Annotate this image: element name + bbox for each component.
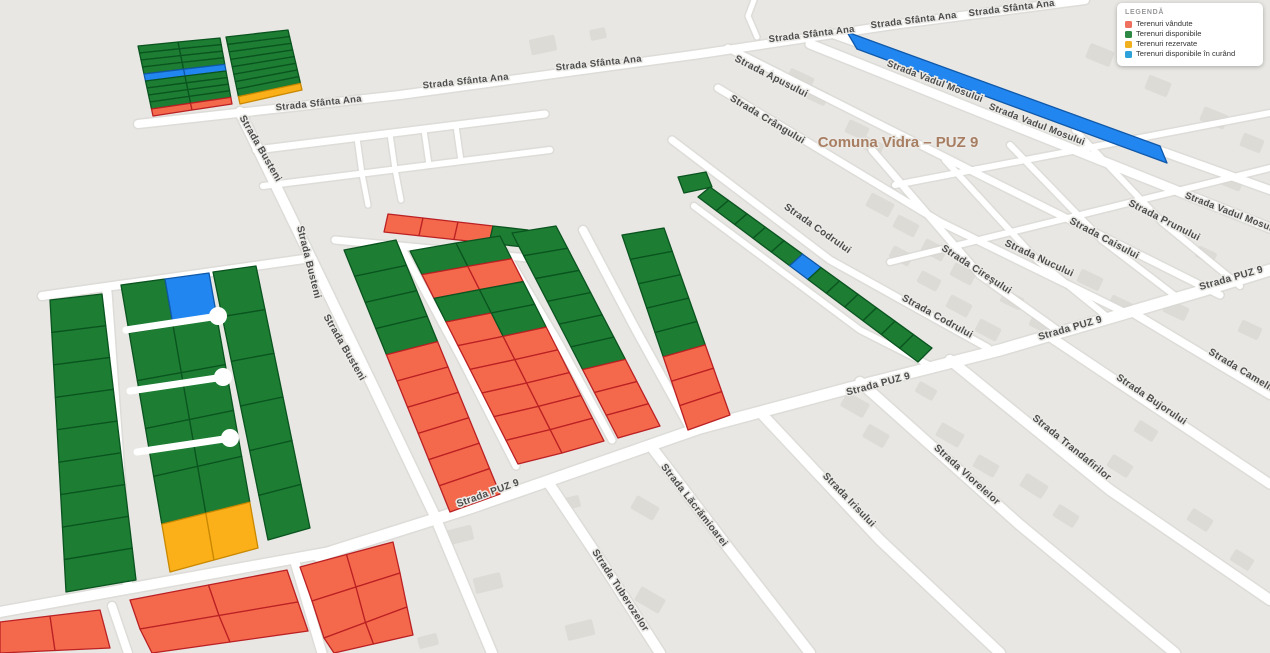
legend-swatch-icon <box>1125 51 1132 58</box>
legend-item-label: Terenuri disponibile <box>1136 29 1201 39</box>
area-label: Comuna Vidra – PUZ 9 <box>818 134 979 151</box>
plot-red-bl-corner-2[interactable] <box>50 610 110 651</box>
legend-item-label: Terenuri vândute <box>1136 19 1193 29</box>
legend-item-label: Terenuri disponibile în curând <box>1136 49 1235 59</box>
plot-red-bl-corner-1[interactable] <box>0 616 55 653</box>
culdesac-bulb-1 <box>209 307 227 325</box>
map-app: Strada Sfânta AnaStrada Sfânta AnaStrada… <box>0 0 1270 653</box>
legend-item-label: Terenuri rezervate <box>1136 39 1197 49</box>
culdesac-bulb-2 <box>214 368 232 386</box>
legend-items: Terenuri vânduteTerenuri disponibileTere… <box>1125 19 1255 59</box>
legend-card: LEGENDĂ Terenuri vânduteTerenuri disponi… <box>1117 3 1263 66</box>
legend-title: LEGENDĂ <box>1125 9 1255 16</box>
plot-lb-mid-2-2[interactable] <box>173 319 225 373</box>
legend-item-r: Terenuri rezervate <box>1125 39 1255 49</box>
legend-item-d: Terenuri disponibile <box>1125 29 1255 39</box>
plot-lb-mid-1-2[interactable] <box>129 326 181 381</box>
plot-central-top-row-2[interactable] <box>419 218 458 240</box>
legend-swatch-icon <box>1125 31 1132 38</box>
legend-swatch-icon <box>1125 41 1132 48</box>
map-canvas[interactable]: Strada Sfânta AnaStrada Sfânta AnaStrada… <box>0 0 1270 653</box>
legend-swatch-icon <box>1125 21 1132 28</box>
plot-lb-right-col-2[interactable] <box>222 310 274 362</box>
plot-central-top-row-1[interactable] <box>384 214 423 236</box>
legend-item-v: Terenuri vândute <box>1125 19 1255 29</box>
culdesac-bulb-3 <box>221 429 239 447</box>
legend-item-c: Terenuri disponibile în curând <box>1125 49 1255 59</box>
